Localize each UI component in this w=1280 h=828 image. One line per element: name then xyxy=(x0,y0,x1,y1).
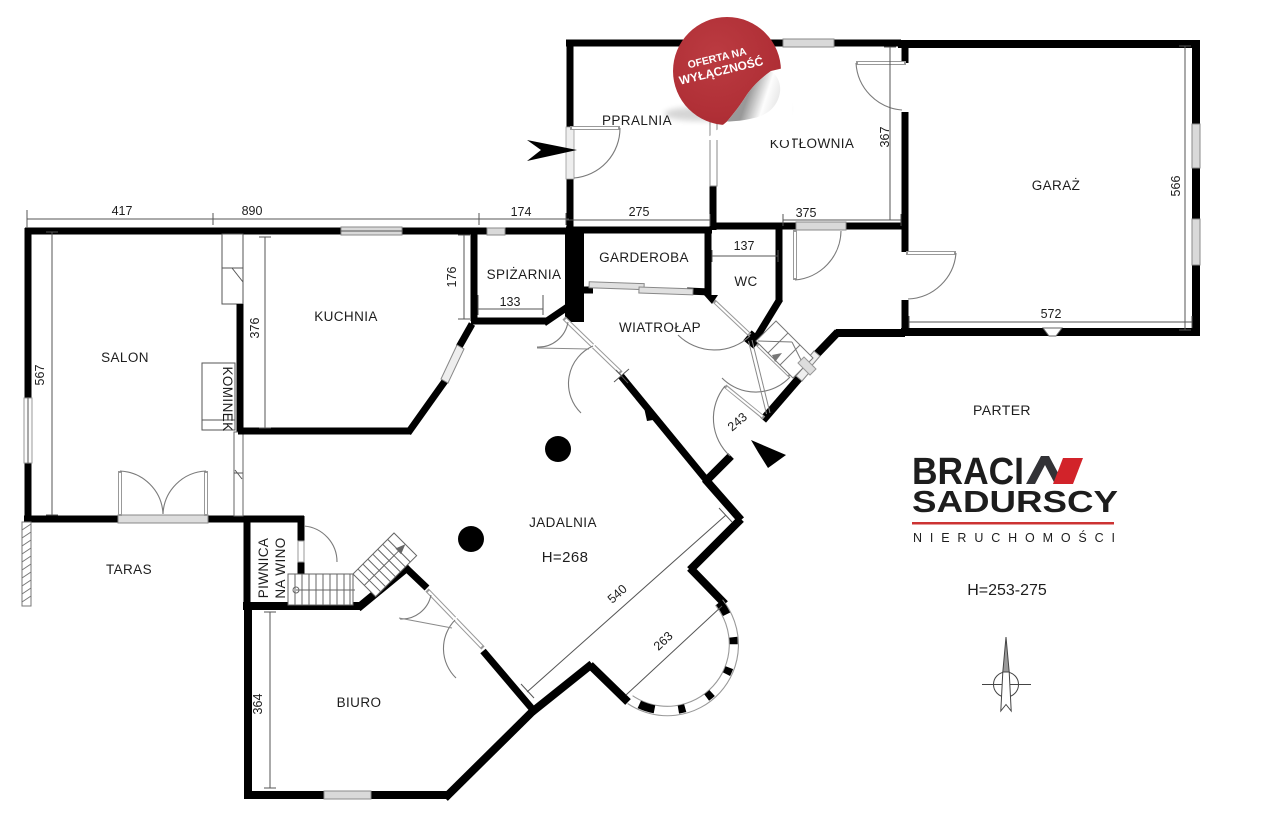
svg-text:890: 890 xyxy=(242,204,263,218)
svg-text:137: 137 xyxy=(734,239,755,253)
svg-text:TARAS: TARAS xyxy=(106,562,152,577)
svg-text:KUCHNIA: KUCHNIA xyxy=(314,309,378,324)
svg-text:KOMINEK: KOMINEK xyxy=(220,366,235,431)
svg-text:174: 174 xyxy=(511,205,532,219)
svg-text:567: 567 xyxy=(33,365,47,386)
svg-text:SALON: SALON xyxy=(101,350,149,365)
svg-text:367: 367 xyxy=(878,127,892,148)
svg-text:566: 566 xyxy=(1169,176,1183,197)
svg-text:PIWNICA: PIWNICA xyxy=(256,538,271,599)
svg-text:176: 176 xyxy=(445,267,459,288)
svg-text:417: 417 xyxy=(112,204,133,218)
svg-text:H=253-275: H=253-275 xyxy=(967,582,1047,599)
svg-text:WIATROŁAP: WIATROŁAP xyxy=(619,320,701,335)
svg-text:375: 375 xyxy=(796,206,817,220)
svg-text:H=268: H=268 xyxy=(542,549,589,566)
svg-text:PARTER: PARTER xyxy=(973,402,1031,418)
svg-text:GARDEROBA: GARDEROBA xyxy=(599,250,689,265)
svg-text:SADURSCY: SADURSCY xyxy=(912,484,1118,519)
svg-text:BIURO: BIURO xyxy=(337,695,382,710)
svg-text:275: 275 xyxy=(629,205,650,219)
svg-text:376: 376 xyxy=(248,318,262,339)
svg-text:WC: WC xyxy=(734,274,757,289)
svg-text:133: 133 xyxy=(500,295,521,309)
svg-text:572: 572 xyxy=(1041,307,1062,321)
svg-text:NA WINO: NA WINO xyxy=(273,537,288,598)
svg-text:JADALNIA: JADALNIA xyxy=(529,515,597,530)
svg-text:364: 364 xyxy=(251,694,265,715)
svg-text:PPRALNIA: PPRALNIA xyxy=(602,113,672,128)
svg-text:NIERUCHOMOŚCI: NIERUCHOMOŚCI xyxy=(913,530,1115,545)
svg-text:SPIŻARNIA: SPIŻARNIA xyxy=(487,267,562,282)
svg-text:GARAŻ: GARAŻ xyxy=(1032,178,1081,193)
